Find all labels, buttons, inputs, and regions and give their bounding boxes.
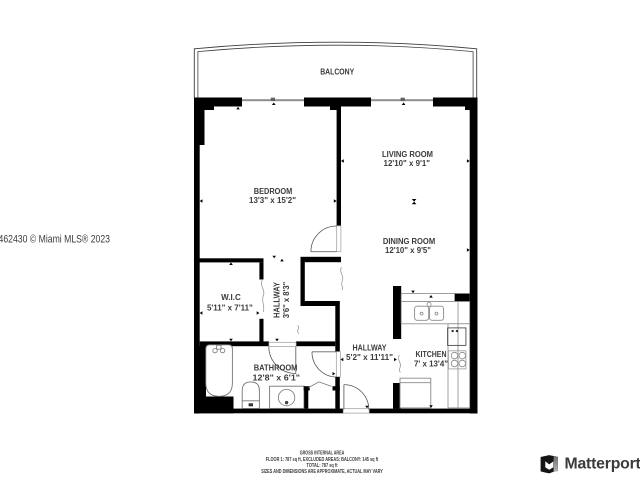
svg-text:3'6" x 8'3": 3'6" x 8'3" (282, 282, 291, 319)
svg-text:W.I.C: W.I.C (221, 293, 241, 302)
svg-text:12'8" x 6'1": 12'8" x 6'1" (253, 373, 301, 382)
svg-text:DINING ROOM: DINING ROOM (383, 237, 436, 246)
svg-text:FLOOR 1: 787 sq ft, EXCLUDED A: FLOOR 1: 787 sq ft, EXCLUDED AREAS; BALC… (266, 457, 379, 463)
svg-text:GROSS INTERNAL AREA: GROSS INTERNAL AREA (300, 451, 345, 457)
svg-text:5'11" x 7'11": 5'11" x 7'11" (207, 303, 253, 312)
svg-text:13'3" x 15'2": 13'3" x 15'2" (249, 196, 296, 205)
svg-text:BEDROOM: BEDROOM (254, 187, 293, 196)
svg-text:Matterport: Matterport (565, 456, 640, 473)
svg-text:SIZES AND DIMENSIONS ARE APPRO: SIZES AND DIMENSIONS ARE APPROXIMATE, AC… (261, 469, 383, 475)
svg-text:BATHROOM: BATHROOM (254, 363, 298, 372)
svg-text:BALCONY: BALCONY (320, 67, 355, 76)
svg-text:462430 © Miami MLS® 2023: 462430 © Miami MLS® 2023 (0, 233, 110, 245)
svg-text:7' x 13'4": 7' x 13'4" (414, 360, 448, 369)
svg-text:5'2" x 11'11": 5'2" x 11'11" (346, 353, 393, 362)
svg-text:HALLWAY: HALLWAY (353, 344, 388, 353)
svg-text:12'10" x 9'1": 12'10" x 9'1" (384, 159, 431, 168)
svg-text:LIVING ROOM: LIVING ROOM (382, 150, 433, 159)
svg-text:12'10" x 9'5": 12'10" x 9'5" (385, 246, 431, 255)
svg-text:HALLWAY: HALLWAY (273, 281, 282, 318)
svg-text:KITCHEN: KITCHEN (416, 350, 447, 359)
